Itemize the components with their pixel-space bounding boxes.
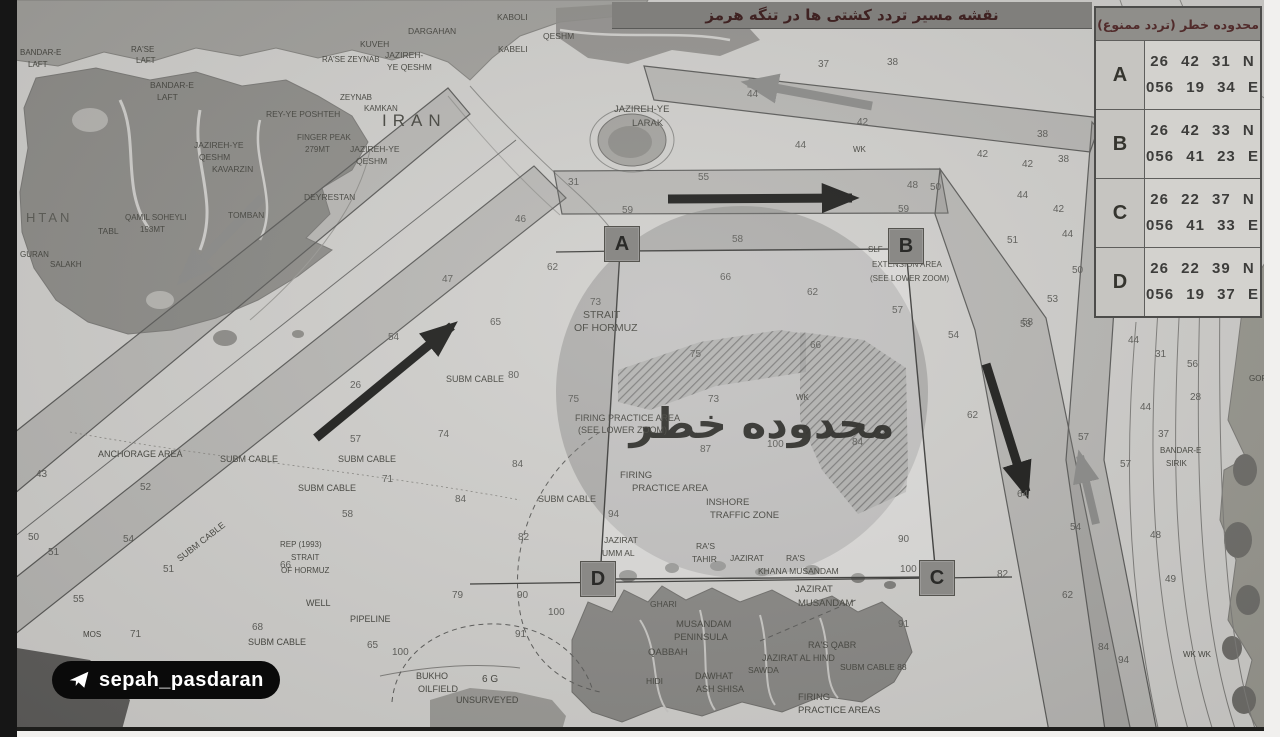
place-label: LAFT: [157, 92, 178, 102]
place-label: STRAIT: [583, 309, 621, 321]
depth-label: 84: [852, 437, 864, 448]
place-label: GHARI: [650, 599, 677, 609]
place-label: IRAN: [382, 111, 447, 130]
depth-label: 53: [1047, 294, 1059, 305]
depth-label: 58: [342, 509, 354, 520]
place-label: ASH SHISA: [696, 684, 744, 694]
place-label: SUBM CABLE 88: [840, 662, 907, 672]
point-coordinates: 26 42 33 N 056 41 23 E: [1145, 110, 1260, 178]
depth-label: 66: [720, 272, 732, 283]
place-label: BANDAR-E: [20, 48, 61, 57]
depth-label: 50: [28, 532, 40, 543]
place-label: FIRING PRACTICE AREA: [575, 413, 680, 423]
place-label: PIPELINE: [350, 614, 391, 624]
depth-label: 58: [732, 234, 744, 245]
depth-label: 55: [73, 594, 85, 605]
depth-label: 100: [548, 607, 565, 618]
depth-label: 94: [608, 509, 620, 520]
place-label: KABOLI: [497, 12, 528, 22]
depth-label: 75: [568, 394, 580, 405]
depth-label: 38: [1037, 129, 1049, 140]
danger-zone-coordinates-table: محدوده خطر (تردد ممنوع) A 26 42 31 N 056…: [1094, 6, 1262, 318]
photo-border-right: [1264, 0, 1280, 737]
place-label: JAZIREH-YE: [614, 104, 669, 115]
depth-label: 79: [452, 590, 464, 601]
place-label: JAZIREH-YE: [350, 144, 400, 154]
latitude: 26 22 37 N: [1150, 187, 1254, 213]
place-label: STRAIT: [291, 553, 320, 562]
latitude: 26 42 33 N: [1150, 118, 1254, 144]
depth-label: 94: [1118, 655, 1130, 666]
place-label: (SEE LOWER ZOOM): [870, 274, 949, 283]
place-label: KUVEH: [360, 39, 389, 49]
place-label: REP (1993): [280, 540, 322, 549]
place-label: DARGAHAN: [408, 26, 456, 36]
place-label: DAWHAT: [695, 671, 733, 681]
place-label: MUSANDAM: [798, 598, 854, 609]
depth-label: 84: [512, 459, 524, 470]
longitude: 056 41 33 E: [1146, 213, 1259, 239]
place-label: TOMBAN: [228, 210, 264, 220]
place-label: HTAN: [26, 210, 72, 225]
depth-label: 37: [818, 59, 830, 70]
corner-marker-d: D: [580, 561, 616, 597]
depth-label: 57: [350, 434, 362, 445]
table-row: C 26 22 37 N 056 41 33 E: [1096, 178, 1260, 247]
depth-label: 54: [388, 332, 400, 343]
depth-label: 38: [887, 57, 899, 68]
depth-label: 48: [907, 180, 919, 191]
latitude: 26 22 39 N: [1150, 256, 1254, 282]
place-label: MOS: [83, 630, 101, 639]
place-label: LAFT: [28, 60, 48, 69]
table-row: B 26 42 33 N 056 41 23 E: [1096, 109, 1260, 178]
depth-label: 80: [508, 370, 520, 381]
place-label: KABELI: [498, 44, 528, 54]
depth-label: 82: [518, 532, 530, 543]
place-label: RA'SE ZEYNAB: [322, 55, 380, 64]
place-label: KAVARZIN: [212, 164, 253, 174]
place-label: JAZIRAT: [795, 584, 833, 595]
place-label: JAZIREH-YE: [194, 140, 244, 150]
place-label: 279MT: [305, 145, 330, 154]
place-label: TRAFFIC ZONE: [710, 510, 779, 521]
depth-label: 59: [898, 204, 910, 215]
place-label: SUBM CABLE: [338, 454, 396, 464]
table-header: محدوده خطر (تردد ممنوع): [1096, 8, 1260, 40]
place-label: SLF: [868, 245, 883, 254]
table-row: A 26 42 31 N 056 19 34 E: [1096, 40, 1260, 109]
place-label: OILFIELD: [418, 684, 459, 694]
place-label: QABBAH: [648, 647, 688, 658]
longitude: 056 19 37 E: [1146, 282, 1259, 308]
place-label: ANCHORAGE AREA: [98, 449, 183, 459]
depth-label: 49: [1165, 574, 1177, 585]
depth-label: 57: [892, 305, 904, 316]
place-label: KHANA MUSANDAM: [758, 566, 839, 576]
depth-label: 54: [1070, 522, 1082, 533]
depth-label: 62: [807, 287, 819, 298]
place-label: (SEE LOWER ZOOM): [578, 425, 667, 435]
depth-label: 57: [1120, 459, 1132, 470]
chart-title: نقشه مسیر تردد کشتی ها در تنگه هرمز: [705, 6, 998, 24]
point-coordinates: 26 22 37 N 056 41 33 E: [1145, 179, 1260, 247]
depth-label: 52: [140, 482, 152, 493]
place-label: SALAKH: [50, 260, 82, 269]
point-letter: A: [1096, 41, 1145, 109]
place-label: RA'S: [786, 553, 805, 563]
latitude: 26 42 31 N: [1150, 49, 1254, 75]
depth-label: 43: [36, 469, 48, 480]
place-label: RA'SE: [131, 45, 154, 54]
depth-label: 62: [1062, 590, 1074, 601]
depth-label: 73: [708, 394, 720, 405]
depth-label: 50: [930, 182, 942, 193]
point-letter: C: [1096, 179, 1145, 247]
depth-label: 42: [977, 149, 989, 160]
watermark-label: sepah_pasdaran: [99, 669, 264, 692]
place-label: JAZIRAT AL HIND: [762, 653, 835, 663]
place-label: UMM AL: [602, 548, 635, 558]
depth-label: 44: [1017, 190, 1029, 201]
depth-label: 55: [698, 172, 710, 183]
depth-label: 90: [517, 590, 529, 601]
place-label: BANDAR-E: [1160, 446, 1201, 455]
depth-label: 58: [1022, 317, 1034, 328]
place-label: 198MT: [140, 225, 165, 234]
place-label: SUBM CABLE: [298, 483, 356, 493]
place-label: SIRIK: [1166, 459, 1188, 468]
point-coordinates: 26 22 39 N 056 19 37 E: [1145, 248, 1260, 316]
depth-label: 75: [690, 349, 702, 360]
photo-border-left: [0, 0, 17, 737]
place-label: LAFT: [136, 56, 156, 65]
place-label: MUSANDAM: [676, 619, 732, 630]
depth-label: 91: [515, 629, 527, 640]
depth-label: 31: [1155, 349, 1167, 360]
place-label: JAZIRAT: [730, 553, 764, 563]
telegram-plane-icon: [68, 669, 90, 691]
depth-label: 64: [1017, 489, 1029, 500]
depth-label: 74: [438, 429, 450, 440]
place-label: LARAK: [632, 118, 664, 129]
place-label: YE QESHM: [387, 62, 432, 72]
depth-label: 84: [455, 494, 467, 505]
longitude: 056 19 34 E: [1146, 75, 1259, 101]
corner-marker-c: C: [919, 560, 955, 596]
depth-label: 44: [747, 89, 759, 100]
depth-label: 44: [1140, 402, 1152, 413]
depth-label: 38: [1058, 154, 1070, 165]
depth-label: 65: [490, 317, 502, 328]
depth-label: 100: [767, 439, 784, 450]
place-label: QAMIL SOHEYLI: [125, 213, 187, 222]
depth-label: 42: [1053, 204, 1065, 215]
point-coordinates: 26 42 31 N 056 19 34 E: [1145, 41, 1260, 109]
place-label: INSHORE: [706, 497, 749, 508]
depth-label: 62: [967, 410, 979, 421]
table-row: D 26 22 39 N 056 19 37 E: [1096, 247, 1260, 316]
place-label: PENINSULA: [674, 632, 729, 643]
depth-label: 37: [1158, 429, 1170, 440]
depth-label: 47: [442, 274, 454, 285]
place-label: PRACTICE AREAS: [798, 705, 880, 716]
depth-label: 26: [350, 380, 362, 391]
depth-label: 73: [590, 297, 602, 308]
corner-marker-b: B: [888, 228, 924, 264]
place-label: QESHM: [199, 152, 230, 162]
place-label: DEYRESTAN: [304, 192, 355, 202]
depth-label: 28: [1190, 392, 1202, 403]
place-label: GURAN: [20, 250, 49, 259]
depth-label: 48: [1150, 530, 1162, 541]
place-label: BUKHO: [416, 671, 448, 681]
depth-label: 62: [547, 262, 559, 273]
place-label: FIRING: [798, 692, 830, 703]
longitude: 056 41 23 E: [1146, 144, 1259, 170]
depth-label: 84: [1098, 642, 1110, 653]
depth-label: 71: [130, 629, 142, 640]
place-label: SUBM CABLE: [446, 374, 504, 384]
depth-label: 50: [1072, 265, 1084, 276]
eastbound-arrow: [668, 198, 852, 199]
point-letter: D: [1096, 248, 1145, 316]
depth-label: 100: [900, 564, 917, 575]
chart-title-bar: نقشه مسیر تردد کشتی ها در تنگه هرمز: [612, 2, 1092, 29]
chart-photo: محدوده خطر 37384442444238384244424451505…: [0, 0, 1280, 737]
hengam-island: [213, 330, 237, 346]
depth-label: 65: [367, 640, 379, 651]
place-label: ZEYNAB: [340, 93, 372, 102]
depth-label: 91: [898, 619, 910, 630]
depth-label: 87: [700, 444, 712, 455]
depth-label: 44: [1128, 335, 1140, 346]
depth-label: 54: [948, 330, 960, 341]
place-label: RA'S QABR: [808, 640, 857, 650]
place-label: OF HORMUZ: [281, 566, 330, 575]
depth-label: 31: [568, 177, 580, 188]
place-label: TAHIR: [692, 554, 717, 564]
place-label: QESHM: [543, 31, 574, 41]
photo-margin-bottom: [17, 731, 1264, 737]
nautical-chart-map: محدوده خطر 37384442444238384244424451505…: [0, 0, 1280, 737]
place-label: WK: [796, 393, 810, 402]
place-label: PRACTICE AREA: [632, 483, 709, 494]
place-label: FINGER PEAK: [297, 133, 351, 142]
depth-label: 51: [48, 547, 60, 558]
depth-label: 100: [392, 647, 409, 658]
point-letter: B: [1096, 110, 1145, 178]
depth-label: 46: [515, 214, 527, 225]
depth-label: 66: [810, 340, 822, 351]
place-label: JAZIRAT: [604, 535, 638, 545]
place-label: SUBM CABLE: [538, 494, 596, 504]
place-label: WELL: [306, 598, 331, 608]
depth-label: 42: [857, 117, 869, 128]
place-label: WK WK: [1183, 650, 1212, 659]
place-label: JAZIREH-: [385, 50, 423, 60]
depth-label: 51: [1007, 235, 1019, 246]
place-label: SUBM CABLE: [220, 454, 278, 464]
depth-label: 51: [163, 564, 175, 575]
place-label: RA'S: [696, 541, 715, 551]
depth-label: 42: [1022, 159, 1034, 170]
depth-label: 44: [1062, 229, 1074, 240]
place-label: BANDAR-E: [150, 80, 194, 90]
depth-label: 56: [1187, 359, 1199, 370]
depth-label: 90: [898, 534, 910, 545]
depth-label: 57: [1078, 432, 1090, 443]
place-label: FIRING: [620, 470, 652, 481]
place-label: 6 G: [482, 674, 498, 685]
place-label: OF HORMUZ: [574, 322, 638, 334]
place-label: TABL: [98, 226, 119, 236]
place-label: HIDI: [646, 676, 663, 686]
depth-label: 71: [382, 474, 394, 485]
place-label: SUBM CABLE: [248, 637, 306, 647]
depth-label: 44: [795, 140, 807, 151]
place-label: UNSURVEYED: [456, 695, 519, 705]
depth-label: 59: [622, 205, 634, 216]
place-label: REY-YE POSHTEH: [266, 109, 340, 119]
place-label: WK: [853, 145, 867, 154]
place-label: QESHM: [356, 156, 387, 166]
watermark-badge: sepah_pasdaran: [52, 661, 280, 699]
corner-marker-a: A: [604, 226, 640, 262]
place-label: SAWDA: [748, 665, 779, 675]
depth-label: 82: [997, 569, 1009, 580]
depth-label: 68: [252, 622, 264, 633]
depth-label: 54: [123, 534, 135, 545]
